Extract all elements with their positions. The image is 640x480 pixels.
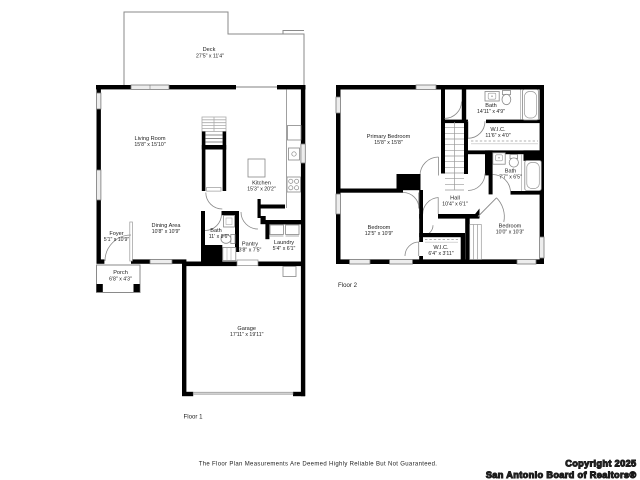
svg-text:Copyright 2025: Copyright 2025: [565, 458, 636, 468]
svg-text:Bedroom: Bedroom: [499, 223, 522, 229]
svg-text:Bedroom: Bedroom: [368, 225, 391, 231]
svg-text:10'0" x 10'3": 10'0" x 10'3": [496, 230, 525, 236]
svg-text:3'8" x 7'5": 3'8" x 7'5": [239, 248, 262, 254]
svg-text:Floor 1: Floor 1: [184, 413, 204, 420]
svg-text:Garage: Garage: [237, 326, 256, 332]
svg-text:Dining Area: Dining Area: [152, 223, 182, 229]
svg-text:Deck: Deck: [203, 47, 216, 53]
svg-text:12'5" x 10'9": 12'5" x 10'9": [365, 231, 394, 237]
svg-text:Porch: Porch: [113, 270, 128, 276]
svg-text:Bath: Bath: [210, 228, 222, 234]
svg-text:W.I.C.: W.I.C.: [490, 127, 506, 133]
svg-text:Foyer: Foyer: [109, 231, 123, 237]
svg-text:Pantry: Pantry: [242, 241, 258, 247]
svg-text:5'4" x 6'1": 5'4" x 6'1": [273, 246, 296, 252]
svg-text:San Antonio Board of Realtors®: San Antonio Board of Realtors®: [486, 470, 637, 480]
svg-text:Hall: Hall: [450, 195, 460, 201]
svg-text:W.I.C.: W.I.C.: [433, 245, 449, 251]
svg-text:Bath: Bath: [485, 103, 497, 109]
svg-text:17'11" x 19'11": 17'11" x 19'11": [230, 332, 264, 338]
svg-text:6'4" x 3'11": 6'4" x 3'11": [428, 251, 453, 257]
svg-text:Bath: Bath: [505, 168, 517, 174]
svg-text:The Floor Plan Measurements Ar: The Floor Plan Measurements Are Deemed H…: [199, 461, 438, 467]
svg-text:11'6" x 4'0": 11'6" x 4'0": [485, 133, 510, 139]
svg-text:Kitchen: Kitchen: [252, 180, 271, 186]
svg-text:15'8" x 15'8": 15'8" x 15'8": [374, 140, 403, 146]
svg-text:27'5" x 11'4": 27'5" x 11'4": [196, 54, 224, 60]
svg-text:14'11" x 4'9": 14'11" x 4'9": [477, 109, 505, 115]
svg-text:6'8" x 4'3": 6'8" x 4'3": [109, 277, 132, 283]
svg-text:15'8" x 15'10": 15'8" x 15'10": [134, 142, 165, 148]
svg-text:Living Room: Living Room: [134, 136, 165, 142]
svg-text:11' x 8'6": 11' x 8'6": [209, 234, 230, 240]
svg-text:Floor 2: Floor 2: [338, 282, 358, 289]
svg-text:Primary Bedroom: Primary Bedroom: [367, 134, 411, 140]
svg-text:10'8" x 10'9": 10'8" x 10'9": [152, 229, 181, 235]
svg-text:Laundry: Laundry: [274, 240, 294, 246]
svg-text:7'7" x 6'5": 7'7" x 6'5": [499, 175, 522, 181]
svg-text:15'3" x 20'2": 15'3" x 20'2": [247, 187, 276, 193]
svg-text:5'1" x 10'9": 5'1" x 10'9": [104, 237, 130, 243]
svg-text:10'4" x 6'1": 10'4" x 6'1": [442, 202, 468, 208]
